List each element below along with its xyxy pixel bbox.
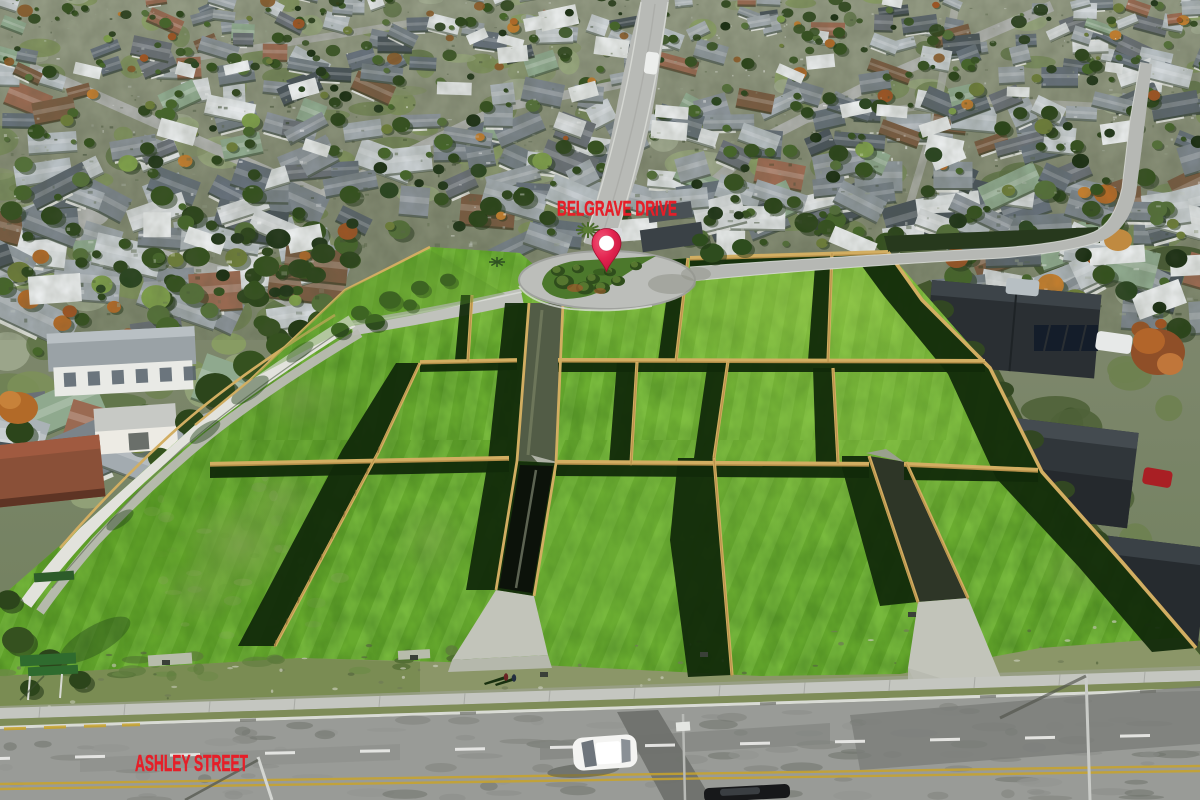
svg-text:ASHLEY STREET: ASHLEY STREET	[135, 750, 248, 776]
svg-text:BELGRAVE DRIVE: BELGRAVE DRIVE	[557, 198, 677, 221]
